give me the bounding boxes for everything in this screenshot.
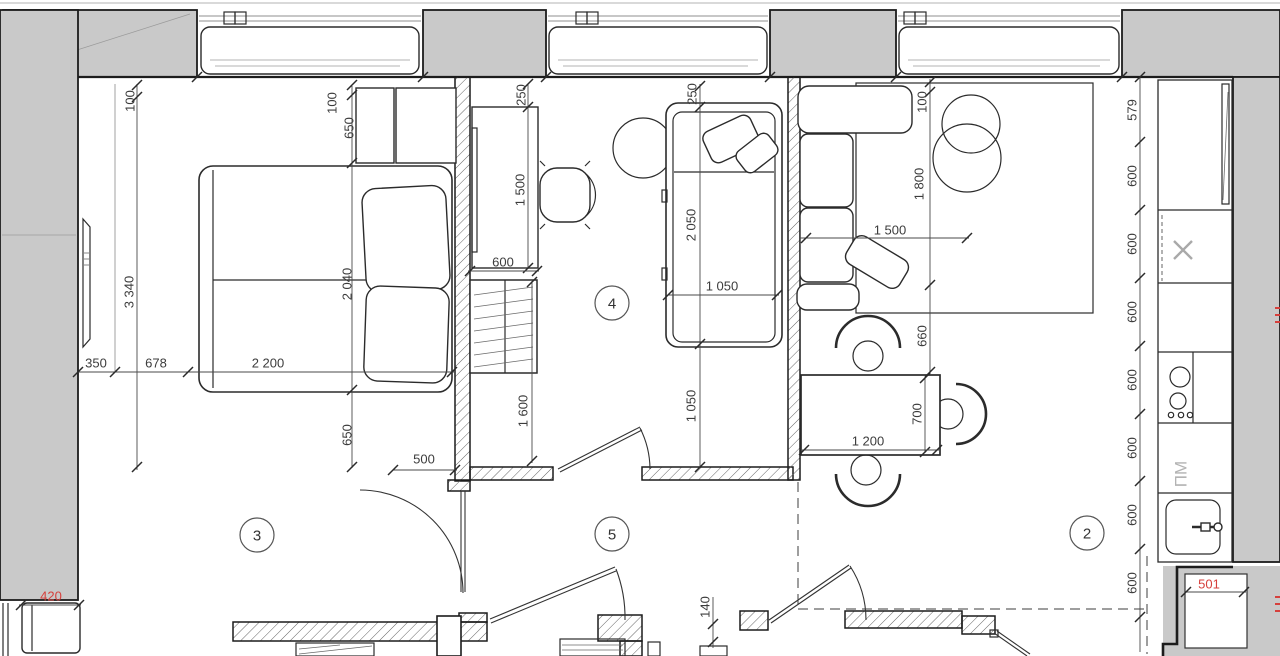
kitchen-run: ПМ [1158,80,1232,562]
pillow [363,286,449,384]
wall-bedroom-kids [455,77,470,481]
dim-label: 500 [413,452,435,467]
dim-label: 1 050 [706,279,739,294]
dim-label: 700 [910,403,925,425]
dim-label: 1 600 [516,395,531,428]
dim-label: 600 [1125,504,1140,526]
background [0,0,1280,656]
wall-kids-living [788,77,800,480]
dim-label: 100 [915,91,930,113]
closet [396,88,456,163]
dishwasher-label: ПМ [1172,461,1191,487]
dim-label: 600 [1125,233,1140,255]
dim-label: 678 [145,356,167,371]
dim-label: 250 [685,83,700,105]
dim-label: 1 050 [684,390,699,423]
dim-label: 250 [514,84,529,106]
left-exterior-wall [0,10,78,600]
double-bed [199,166,452,392]
balcony-door [22,603,80,653]
dim-label: 600 [1125,369,1140,391]
dim-label: 650 [340,424,355,446]
dim-label: 1 800 [912,168,927,201]
wall-bath [598,615,642,641]
room-number: 2 [1083,526,1091,543]
wall-bath [740,611,768,630]
room-marker-kids: 4 [595,286,629,320]
floor-plan-drawing: ПМ [0,0,1280,656]
wall-kids-hall [470,467,553,480]
pillow [361,185,450,293]
dim-label: 350 [85,356,107,371]
dim-label: 1 200 [852,434,885,449]
dim-label-red: 501 [1198,577,1220,592]
wall-pier-hall [437,616,461,656]
dim-label: 100 [123,90,138,112]
kitchen-niche-wall [1163,566,1280,656]
window-bedroom [197,8,423,77]
dim-label: 600 [1125,165,1140,187]
radiator-icon [899,27,1119,74]
dim-label: 1 500 [874,223,907,238]
radiator-icon [549,27,767,74]
single-bed [662,103,782,347]
wall-hall-wc [845,611,962,628]
window-kids-room [546,8,770,77]
dim-label: 2 050 [684,209,699,242]
dim-label: 600 [1125,572,1140,594]
dim-label: 2 200 [252,356,285,371]
room-number: 5 [608,527,616,544]
wall-pier [423,10,546,77]
room-number: 4 [608,296,616,313]
dim-label: 2 040 [340,268,355,301]
floor-plan-canvas: ПМ [0,0,1280,656]
dim-label: 1 500 [513,174,528,207]
right-exterior-wall [1233,77,1280,562]
dim-label-red: 420 [40,589,62,604]
dim-label: 579 [1125,99,1140,121]
wardrobe [470,280,537,373]
radiator-icon [201,27,419,74]
wall-pier [1122,10,1280,77]
dim-label: 100 [325,92,340,114]
dim-label: 600 [492,255,514,270]
room-marker-hall: 5 [595,517,629,551]
room-marker-bedroom: 3 [240,518,274,552]
dim-label: 650 [342,117,357,139]
faucet-icon [1201,523,1210,531]
dim-label: 140 [698,596,713,618]
dim-label: 660 [915,325,930,347]
room-number: 3 [253,528,261,545]
closet [356,88,394,163]
room-marker-kitchen-living: 2 [1070,516,1104,550]
wall-pier [770,10,896,77]
dim-label: 600 [1125,437,1140,459]
dim-label: 3 340 [122,276,137,309]
dim-label: 600 [1125,301,1140,323]
window-living [896,8,1122,77]
wall-kids-hall [642,467,793,480]
